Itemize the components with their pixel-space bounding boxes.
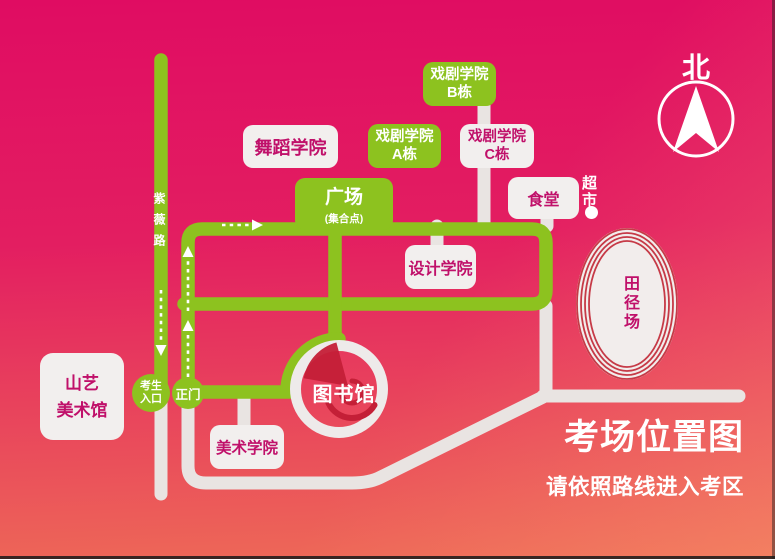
compass-icon: [659, 82, 733, 156]
building-label: 美术馆: [57, 397, 108, 424]
gate-label: 考生: [140, 380, 162, 393]
gate-candidate-entrance: 考生 入口: [132, 374, 170, 412]
compass-north-label: 北: [668, 46, 724, 86]
building-label: 戏剧学院: [431, 66, 489, 84]
building-label: B栋: [447, 84, 472, 102]
plaza-name: 广场: [325, 182, 363, 209]
gate-label: 正门: [175, 384, 200, 403]
building-label: 食堂: [527, 186, 559, 210]
building-design-academy: 设计学院: [405, 245, 476, 289]
title-block: 考场位置图 请依照路线进入考区: [546, 409, 744, 501]
building-fine-arts-academy: 美术学院: [210, 425, 284, 469]
road-main-loop: [184, 229, 546, 388]
building-art-museum: 山艺 美术馆: [40, 353, 124, 440]
map-subtitle: 请依照路线进入考区: [546, 470, 744, 501]
supermarket-dot-icon: [585, 206, 598, 219]
supermarket-label: 超市: [578, 175, 599, 209]
map-title: 考场位置图: [546, 409, 744, 460]
building-label: C栋: [485, 146, 510, 164]
building-label: 戏剧学院: [468, 128, 526, 146]
building-label: 舞蹈学院: [255, 134, 327, 160]
building-label: 美术学院: [216, 436, 278, 458]
compass-north-arrow: [673, 86, 719, 152]
building-dance-academy: 舞蹈学院: [243, 125, 338, 168]
building-plaza: 广场 (集合点): [295, 178, 393, 230]
building-drama-b: 戏剧学院 B栋: [423, 62, 496, 106]
building-label: 山艺: [65, 370, 99, 397]
road-name-ziwei-lu: 紫薇路: [151, 192, 168, 255]
gate-label: 入口: [140, 393, 162, 406]
building-label: A栋: [392, 146, 417, 164]
campus-map-poster: 山艺 美术馆 舞蹈学院 戏剧学院 A栋 戏剧学院 B栋 戏剧学院 C栋 食堂 广…: [0, 0, 775, 559]
building-label: 戏剧学院: [376, 128, 434, 146]
stadium-label: 田径场: [617, 275, 641, 332]
library-label: 图书馆: [284, 378, 404, 407]
building-drama-c: 戏剧学院 C栋: [460, 124, 534, 168]
gate-main: 正门: [172, 377, 204, 409]
building-canteen: 食堂: [508, 177, 579, 219]
building-label: 设计学院: [408, 255, 472, 279]
plaza-note: (集合点): [325, 211, 364, 226]
building-drama-a: 戏剧学院 A栋: [368, 124, 441, 168]
